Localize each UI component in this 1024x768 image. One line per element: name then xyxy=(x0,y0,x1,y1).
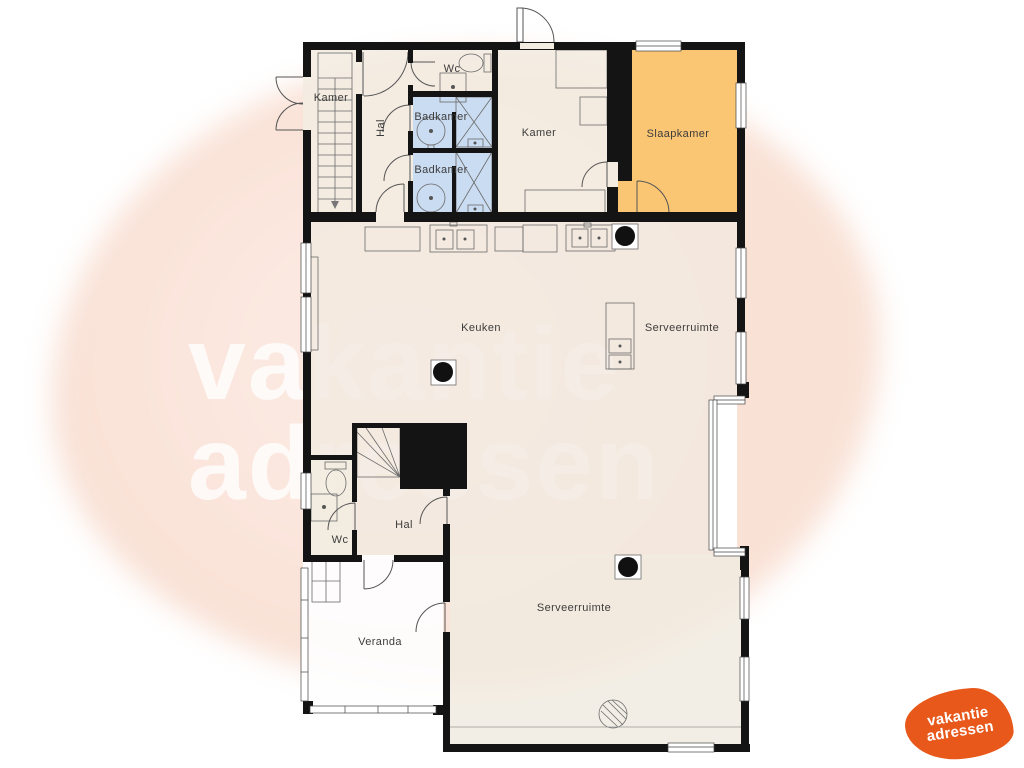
label-badkamer-1: Badkamer xyxy=(414,111,467,123)
label-slaapkamer: Slaapkamer xyxy=(647,128,710,140)
logo-text: vakantie adressen xyxy=(900,681,1018,767)
floorplan-image: vakantie adressen xyxy=(0,0,1024,768)
window xyxy=(668,743,714,752)
veranda-window-south xyxy=(310,706,436,713)
window xyxy=(301,243,311,293)
french-doors-west xyxy=(276,77,303,130)
window xyxy=(709,400,717,550)
label-badkamer-2: Badkamer xyxy=(414,164,467,176)
window xyxy=(301,473,311,509)
veranda-floor xyxy=(303,555,443,705)
veranda-window-west xyxy=(301,568,308,701)
window xyxy=(740,577,749,619)
window xyxy=(714,396,745,404)
keuken-floor xyxy=(310,222,737,558)
serveerruimte-lower-floor xyxy=(450,555,741,744)
window xyxy=(636,41,681,51)
window xyxy=(301,297,311,352)
label-hal-upper: Hal xyxy=(375,119,387,137)
label-kamer-top-left: Kamer xyxy=(314,92,348,104)
window xyxy=(736,248,746,298)
label-serveerruimte-upper: Serveerruimte xyxy=(645,322,719,334)
label-keuken: Keuken xyxy=(461,322,501,334)
window xyxy=(736,332,746,384)
label-veranda: Veranda xyxy=(358,636,402,648)
label-kamer-middle: Kamer xyxy=(522,127,556,139)
floor-plan: Kamer Hal Wc Badkamer Badkamer Kamer Sla… xyxy=(0,0,1024,768)
chimney-block xyxy=(400,423,467,489)
vakantieadressen-logo: vakantie adressen xyxy=(903,685,1016,762)
label-wc-lower: Wc xyxy=(332,534,349,546)
window xyxy=(740,657,749,701)
label-hal-lower: Hal xyxy=(395,519,413,531)
door-north-exterior xyxy=(517,8,554,42)
window xyxy=(736,83,746,128)
label-wc-upper: Wc xyxy=(444,63,461,75)
bay-exterior xyxy=(717,404,737,548)
window xyxy=(714,548,745,556)
label-serveerruimte-lower: Serveerruimte xyxy=(537,602,611,614)
